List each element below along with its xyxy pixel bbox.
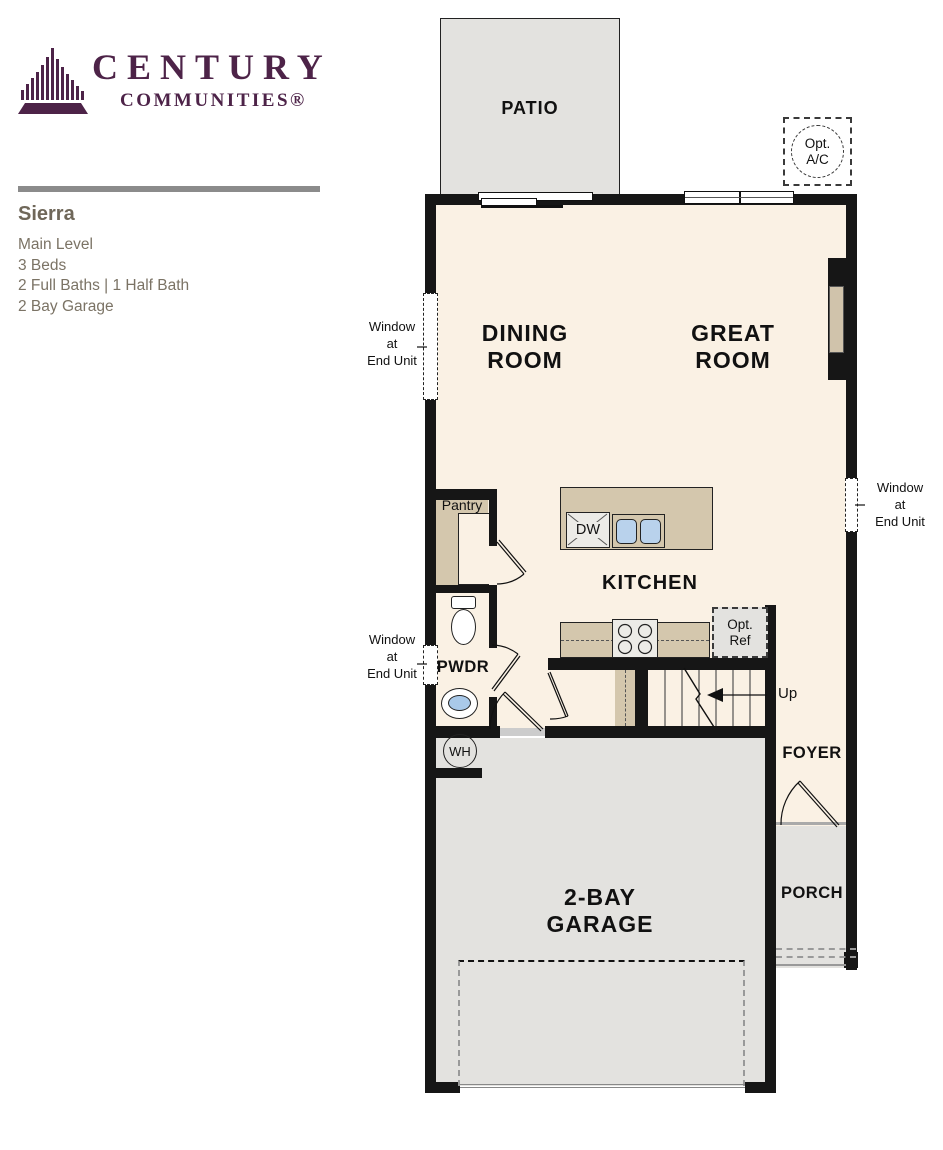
great-room-window (684, 191, 794, 204)
toilet-tank (451, 596, 476, 609)
patio-label: PATIO (460, 98, 600, 119)
plan-level: Main Level (18, 235, 189, 256)
sliding-door-track (481, 205, 563, 208)
toilet-bowl (451, 609, 476, 645)
porch-edge-line (776, 964, 846, 966)
wall-pantry-right (489, 489, 497, 546)
opt-ac-marker: Opt. A/C (783, 117, 852, 186)
plan-title: Sierra (18, 203, 189, 226)
wall-water-heater-closet (425, 768, 482, 778)
porch-threshold (776, 822, 846, 825)
wall-garage-bottom-left (425, 1082, 460, 1093)
wall-pantry-powder (425, 585, 497, 593)
header-divider (18, 186, 320, 192)
wall-garage-bottom-right (745, 1082, 776, 1093)
island-sink-bowl-right (640, 519, 661, 544)
closet-rod-dashed (625, 670, 626, 726)
porch-step-line-2 (776, 956, 856, 958)
range (612, 619, 658, 658)
great-room-label: GREAT ROOM (663, 320, 803, 374)
powder-label: PWDR (434, 658, 492, 677)
floorplan-sheet: { "brand": { "line1": "CENTURY", "line2"… (0, 0, 943, 1150)
garage-door-line (460, 1084, 745, 1088)
wall-powder-right-upper (489, 585, 497, 648)
range-burners (613, 620, 657, 657)
porch-label: PORCH (772, 884, 852, 903)
end-unit-label-left-upper: Window at End Unit (350, 318, 434, 369)
opt-ac-label-line2: A/C (806, 152, 829, 168)
brand-name: CENTURY (92, 46, 332, 88)
end-unit-label-right: Window at End Unit (858, 479, 942, 530)
foyer-label: FOYER (772, 744, 852, 763)
water-heater-circle: WH (443, 734, 477, 768)
garage-label: 2-BAY GARAGE (530, 884, 670, 938)
wall-right (846, 194, 857, 970)
island-sink-bowl-left (616, 519, 637, 544)
opt-ac-circle: Opt. A/C (791, 125, 844, 178)
end-unit-label-left-lower: Window at End Unit (350, 631, 434, 682)
wall-garage-top-right (545, 726, 775, 738)
wall-foyer-garage (765, 605, 776, 1093)
dishwasher: DW (566, 512, 610, 548)
porch-corner-cap (844, 952, 858, 968)
fireplace-insert (829, 286, 844, 353)
driveway-outline (458, 960, 745, 1086)
water-heater-label: WH (449, 744, 471, 759)
sink-basin (448, 695, 471, 711)
brand-logo-icon (18, 40, 88, 116)
wall-closet-stairs-divider (635, 670, 648, 728)
pantry-label: Pantry (434, 497, 490, 513)
plan-garage: 2 Bay Garage (18, 297, 189, 318)
plan-beds: 3 Beds (18, 256, 189, 277)
opt-ref-label-line2: Ref (729, 633, 750, 649)
end-unit-window-right (845, 478, 858, 532)
garage-entry-threshold (500, 728, 545, 736)
window-glass-line (685, 197, 793, 198)
up-label: Up (778, 685, 797, 702)
dishwasher-label: DW (574, 522, 602, 538)
kitchen-label: KITCHEN (580, 572, 720, 595)
wall-closet-stairs-top (548, 658, 775, 670)
opt-ref-label-line1: Opt. (727, 617, 753, 633)
pantry-shelf-interior (458, 513, 489, 585)
opt-ac-label-line1: Opt. (805, 136, 831, 152)
plan-info-block: Sierra Main Level 3 Beds 2 Full Baths | … (18, 203, 189, 317)
plan-baths: 2 Full Baths | 1 Half Bath (18, 276, 189, 297)
opt-ref-marker: Opt. Ref (712, 607, 768, 658)
dining-room-label: DINING ROOM (455, 320, 595, 374)
brand-subname: COMMUNITIES® (120, 90, 307, 112)
porch-step-line-1 (776, 948, 856, 950)
